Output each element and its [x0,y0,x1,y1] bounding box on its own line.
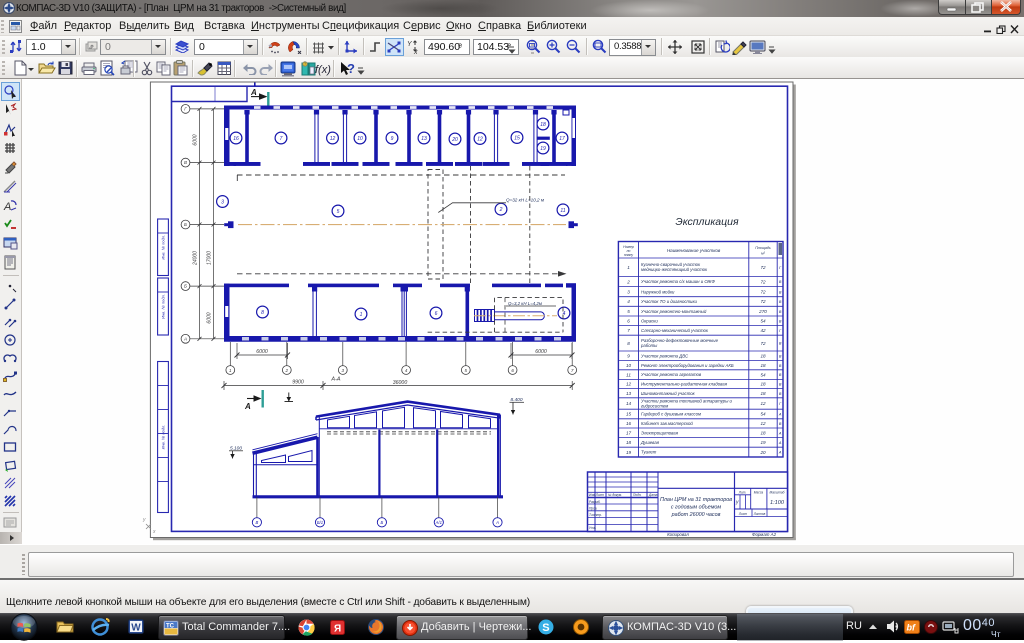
svg-text:9: 9 [627,354,630,359]
svg-text:4: 4 [627,299,630,304]
svg-text:А/1: А/1 [435,520,442,525]
svg-text:Масса: Масса [754,491,764,495]
svg-text:f(x): f(x) [315,64,331,76]
svg-text:6000: 6000 [256,349,268,355]
svg-text:10: 10 [357,136,363,142]
svg-text:8: 8 [261,310,264,316]
svg-text:В: В [779,290,782,294]
svg-text:Утв.: Утв. [589,526,596,530]
svg-text:Шиномонтажный участок: Шиномонтажный участок [641,391,696,396]
svg-text:Дата: Дата [648,493,658,497]
svg-text:36000: 36000 [393,380,408,386]
svg-text:Листов: Листов [753,512,766,516]
svg-text:Электрощитовая: Электрощитовая [641,430,679,435]
svg-text:с годовым объемом: с годовым объемом [671,505,722,511]
svg-text:В: В [779,373,782,377]
svg-text:A: A [3,201,11,213]
svg-text:Масштаб: Масштаб [770,491,785,495]
svg-text:?: ? [347,61,355,76]
svg-text:y: y [142,517,146,523]
svg-text:54: 54 [760,319,766,324]
svg-text:Ремонт электрооборудования и з: Ремонт электрооборудования и зарядки АКБ [641,363,734,368]
svg-text:14: 14 [626,401,632,406]
svg-text:Душевая: Душевая [640,440,660,445]
svg-text:19: 19 [540,146,546,152]
svg-text:А: А [778,451,782,455]
svg-text:18: 18 [626,440,632,445]
svg-text:В: В [779,392,782,396]
svg-text:Б/1: Б/1 [317,520,323,525]
svg-text:18: 18 [540,122,546,128]
svg-text:Подп.: Подп. [633,493,642,497]
svg-text:Участок ТО и диагностики: Участок ТО и диагностики [641,299,697,304]
svg-text:Копировал: Копировал [667,532,689,537]
svg-text:18: 18 [760,363,766,368]
svg-text:А: А [778,441,782,445]
svg-text:72: 72 [760,265,766,270]
svg-text:x: x [152,529,156,535]
svg-text:Инв. № подл.: Инв. № подл. [161,235,166,260]
svg-text:72: 72 [760,289,766,294]
svg-text:9: 9 [391,136,394,142]
svg-text:Я: Я [334,624,341,635]
svg-text:Инв. № подл.: Инв. № подл. [161,425,166,450]
svg-text:Туалет: Туалет [641,450,657,455]
svg-text:13: 13 [626,391,632,396]
svg-text:1: 1 [627,265,630,270]
svg-text:Гардероб с душевым классом: Гардероб с душевым классом [641,412,701,417]
svg-text:42: 42 [760,328,766,333]
svg-text:24000: 24000 [193,251,199,266]
svg-text:Кабинет зав.мастерской: Кабинет зав.мастерской [641,421,693,426]
svg-text:Y: Y [407,41,413,48]
svg-text:А: А [778,413,782,417]
svg-text:20: 20 [759,450,766,455]
svg-text:18: 18 [760,354,766,359]
svg-text:Экспликация: Экспликация [675,216,739,228]
svg-text:Участок ремонта агрегатов: Участок ремонта агрегатов [641,372,702,377]
svg-text:54: 54 [760,412,766,417]
svg-text:bf: bf [907,623,916,633]
svg-text:15: 15 [626,412,632,417]
svg-text:16: 16 [233,136,239,142]
svg-text:Площадь: Площадь [755,246,771,250]
svg-text:72: 72 [760,279,766,284]
svg-text:Наружной мойки: Наружной мойки [641,289,675,294]
svg-text:72: 72 [760,341,766,346]
svg-text:9900: 9900 [292,380,304,386]
svg-text:54: 54 [760,372,766,377]
svg-text:Лист: Лист [738,512,748,516]
svg-text:3: 3 [627,289,630,294]
svg-text:Q=3,2 кН L=4,2м: Q=3,2 кН L=4,2м [508,301,542,306]
svg-text:работы: работы [640,343,658,348]
svg-text:16: 16 [626,421,632,426]
svg-text:А-А: А-А [330,377,341,383]
svg-text:План ЦРМ на 31 тракторов: План ЦРМ на 31 тракторов [660,497,732,503]
svg-text:Лит.: Лит. [738,491,747,495]
svg-text:Б: Б [381,520,384,525]
svg-text:медницко-жестяницкий участок: медницко-жестяницкий участок [641,267,708,272]
svg-text:6000: 6000 [535,349,547,355]
svg-text:Q=32 кН L=10,2 м: Q=32 кН L=10,2 м [506,198,545,203]
svg-text:Б: Б [184,222,187,227]
svg-text:3: 3 [221,199,224,205]
svg-text:В: В [779,354,782,358]
svg-text:7: 7 [627,328,630,333]
svg-text:20: 20 [451,137,458,143]
svg-text:А: А [244,402,251,411]
svg-text:270: 270 [758,309,767,314]
svg-text:18: 18 [760,391,766,396]
svg-text:Инструментально-раздаточная кл: Инструментально-раздаточная кладовая [641,382,728,387]
svg-text:А: А [183,336,187,341]
svg-text:17000: 17000 [207,251,213,265]
svg-text:В: В [779,422,782,426]
svg-text:Формат А2: Формат А2 [752,532,777,537]
svg-text:№ докум.: № докум. [608,493,622,497]
svg-text:13: 13 [421,136,427,142]
svg-text:6000: 6000 [207,312,213,323]
svg-text:1: 1 [360,312,363,318]
svg-text:А: А [250,88,257,97]
svg-text:11: 11 [626,372,631,377]
svg-text:Окраски: Окраски [641,318,658,323]
svg-text:11: 11 [560,208,565,214]
svg-text:В: В [256,520,259,525]
svg-text:5: 5 [337,209,340,215]
svg-text:12: 12 [477,136,483,142]
svg-text:2: 2 [499,207,503,213]
svg-text:у: у [735,500,739,506]
svg-text:В: В [779,300,782,304]
svg-text:10: 10 [626,363,632,368]
svg-text:5: 5 [627,309,630,314]
svg-text:15: 15 [514,135,520,141]
svg-text:Б: Б [184,284,187,289]
svg-text:В: В [779,342,782,346]
svg-text:8: 8 [627,341,630,346]
svg-text:В: В [184,160,187,165]
svg-text:Т.контр.: Т.контр. [589,513,602,517]
svg-text:6000: 6000 [193,134,199,145]
svg-text:W: W [131,623,141,634]
svg-text:7: 7 [280,136,283,142]
svg-text:12: 12 [330,136,336,142]
svg-text:гидросистем: гидросистем [641,403,668,408]
svg-text:72: 72 [760,299,766,304]
svg-text:работ 26000 часов: работ 26000 часов [671,512,721,518]
svg-text:17: 17 [559,136,565,142]
svg-text:Наименование участков: Наименование участков [667,248,721,253]
svg-text:12: 12 [626,382,632,387]
svg-text:1:100: 1:100 [770,500,785,506]
svg-text:плану: плану [624,253,634,257]
svg-text:Разраб.: Разраб. [589,500,601,504]
svg-text:В: В [779,280,782,284]
svg-text:19: 19 [760,440,766,445]
svg-text:Изм Лист: Изм Лист [589,493,604,497]
svg-text:2: 2 [285,368,289,373]
svg-text:Участок ремонта ДВС: Участок ремонта ДВС [641,353,689,358]
svg-text:S: S [542,622,549,634]
svg-text:Пров.: Пров. [589,507,598,511]
svg-text:18: 18 [760,382,766,387]
svg-text:Участок ремонта с/х машин и ОЖ: Участок ремонта с/х машин и ОЖФ [641,279,715,284]
svg-text:2: 2 [626,279,630,284]
svg-text:В: В [779,319,782,323]
svg-text:Слесарно-механический участок: Слесарно-механический участок [641,328,709,333]
svg-text:В: В [779,364,782,368]
svg-text:6: 6 [435,311,438,317]
svg-text:17: 17 [626,431,632,436]
svg-text:В: В [779,310,782,314]
svg-text:А: А [495,520,499,525]
svg-text:Инв. № подл.: Инв. № подл. [161,294,166,319]
svg-text:В: В [779,383,782,387]
svg-text:TC: TC [166,624,175,630]
svg-text:12: 12 [760,401,766,406]
svg-text:19: 19 [626,450,632,455]
svg-text:18: 18 [760,431,766,436]
svg-text:12: 12 [760,421,766,426]
svg-text:Участок ремонтно-монтажный: Участок ремонтно-монтажный [641,309,707,314]
svg-text:6: 6 [627,319,630,324]
svg-text:А: А [778,431,782,435]
